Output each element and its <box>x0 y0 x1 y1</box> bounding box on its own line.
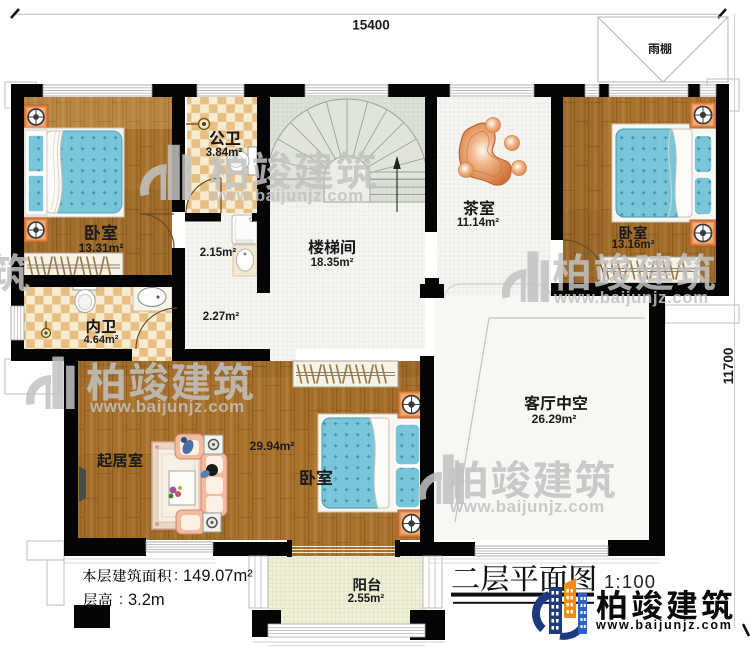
svg-text:2.55m²: 2.55m² <box>348 593 385 605</box>
svg-text:29.94m²: 29.94m² <box>250 439 295 453</box>
svg-text:11700: 11700 <box>721 348 736 385</box>
svg-text:www.baijunjz.com: www.baijunjz.com <box>595 618 733 632</box>
svg-text:2.27m²: 2.27m² <box>203 311 240 323</box>
svg-text:www.baijunjz.com: www.baijunjz.com <box>553 288 709 307</box>
svg-text:2.15m²: 2.15m² <box>200 247 237 259</box>
svg-text::: : <box>174 567 178 584</box>
svg-text:11.14m²: 11.14m² <box>457 217 499 229</box>
svg-text:www.baijunjz.com: www.baijunjz.com <box>208 186 364 205</box>
svg-text:www.baijunjz.com: www.baijunjz.com <box>449 497 605 516</box>
svg-text:18.35m²: 18.35m² <box>311 257 354 269</box>
svg-text:1:100: 1:100 <box>604 571 656 592</box>
svg-text:13.31m²: 13.31m² <box>79 241 124 255</box>
svg-text:4.64m²: 4.64m² <box>84 334 119 346</box>
svg-text:www.baijunjz.com: www.baijunjz.com <box>89 397 245 416</box>
svg-text:149.07m²: 149.07m² <box>183 567 253 585</box>
svg-text:26.29m²: 26.29m² <box>532 412 577 426</box>
svg-text:3.84m²: 3.84m² <box>206 147 243 159</box>
svg-text:3.2m: 3.2m <box>128 591 165 609</box>
svg-text::: : <box>119 591 123 608</box>
svg-text:15400: 15400 <box>352 18 390 33</box>
svg-text:13.16m²: 13.16m² <box>612 239 655 251</box>
